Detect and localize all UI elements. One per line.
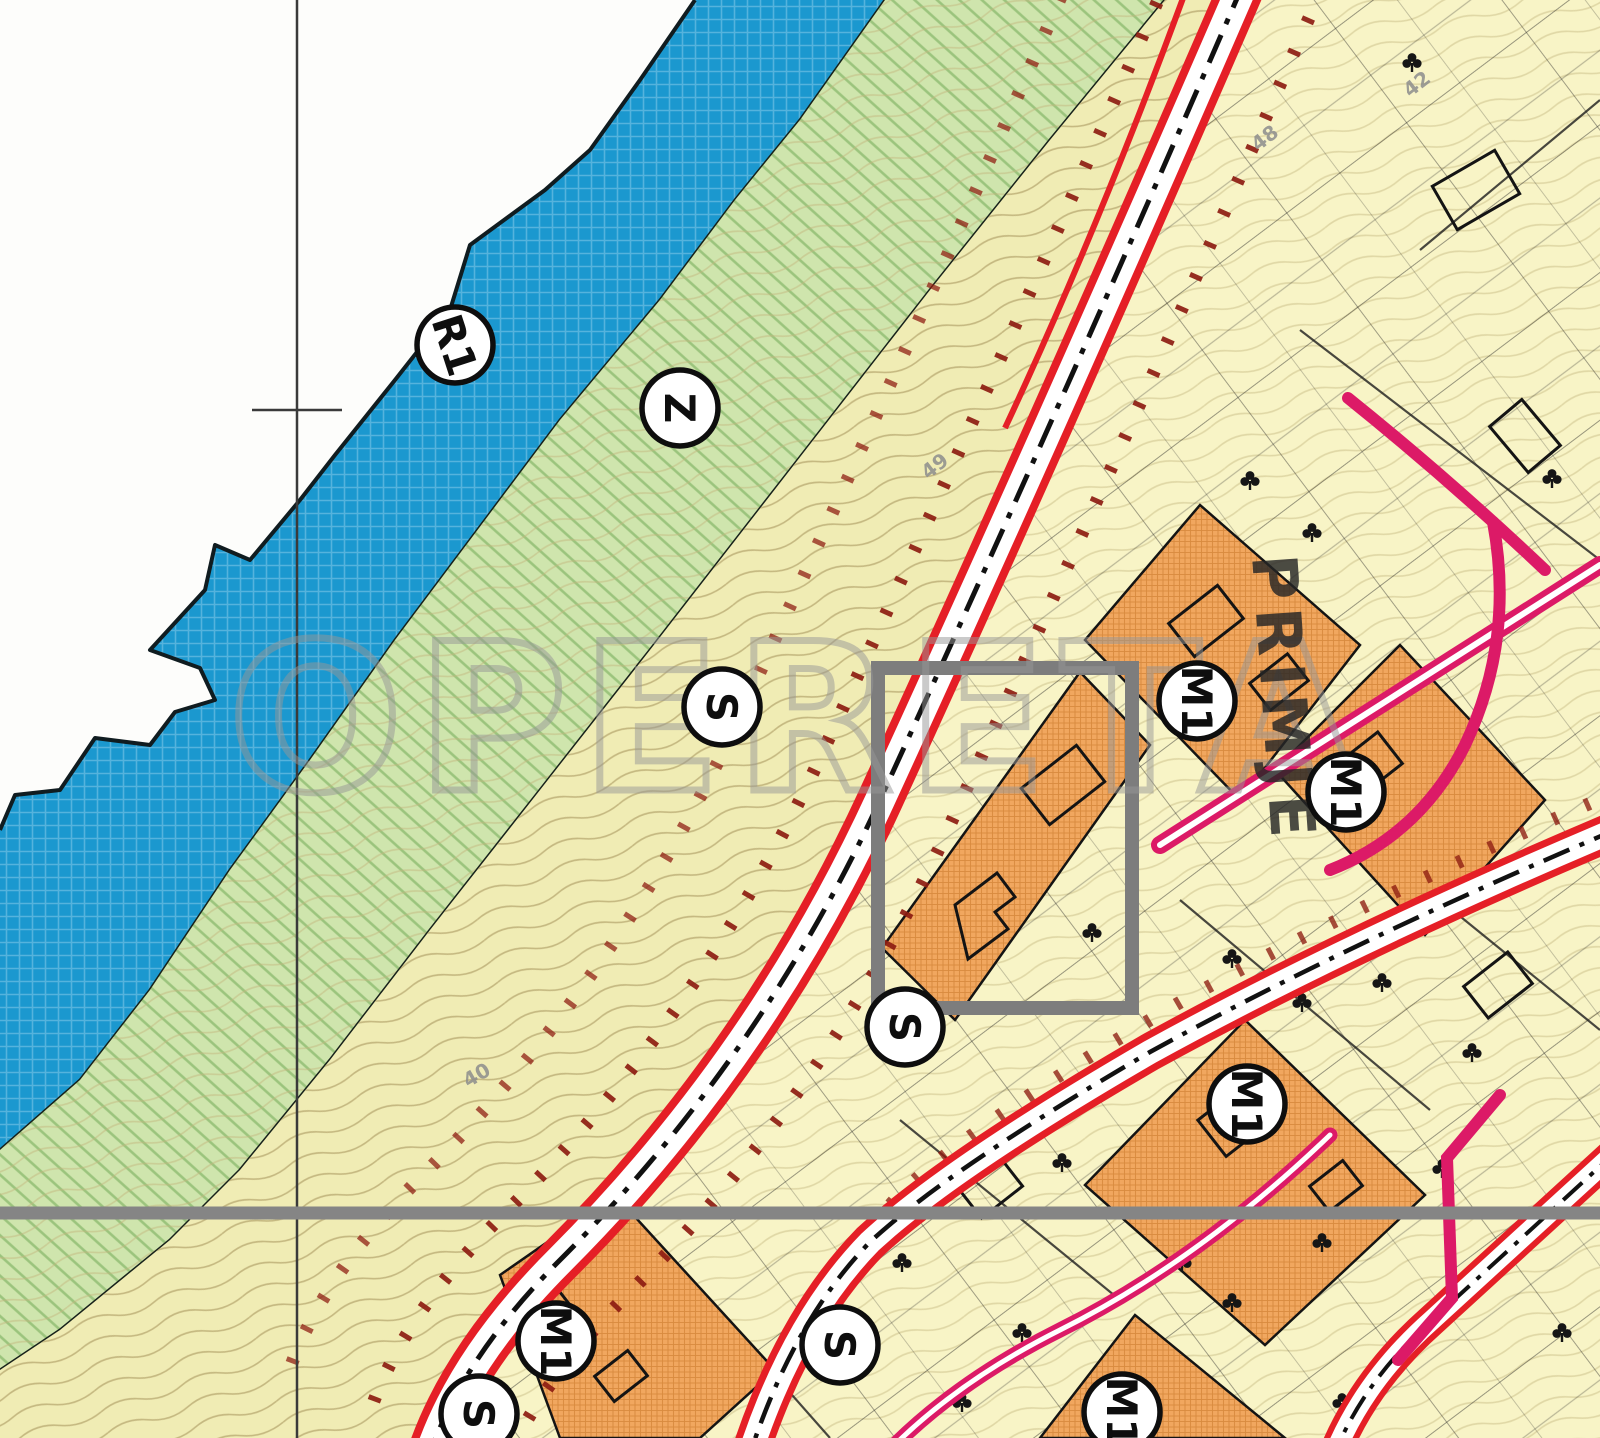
zone-badge-m1: M1: [1159, 663, 1235, 739]
zone-badge-m1: M1: [518, 1303, 594, 1379]
zone-badge-m1: M1: [1209, 1066, 1285, 1142]
zone-badge-label: S: [815, 1330, 864, 1360]
zone-badge-label: M1: [1172, 665, 1221, 736]
zone-badge-label: Z: [655, 393, 704, 423]
zone-badge-label: M1: [1321, 756, 1370, 827]
zone-badge-s: S: [802, 1307, 878, 1383]
zone-badge-z: Z: [642, 370, 718, 446]
zone-badge-m1: M1: [1308, 754, 1384, 830]
zoning-map-page: OPERETA PRIMJE 49484240 R1ZSSM1M1M1M1SSM…: [0, 0, 1600, 1438]
zone-badge-label: S: [697, 692, 746, 722]
zone-badge-s: S: [684, 669, 760, 745]
zone-badge-label: M1: [1222, 1068, 1271, 1139]
zone-badge-s: S: [441, 1376, 517, 1438]
zone-badge-label: S: [880, 1012, 929, 1042]
zone-badge-s: S: [867, 989, 943, 1065]
zone-badge-label: M1: [1097, 1376, 1146, 1438]
zone-badge-r1: R1: [417, 307, 493, 383]
zone-badge-label: M1: [531, 1305, 580, 1376]
map-canvas[interactable]: OPERETA PRIMJE 49484240 R1ZSSM1M1M1M1SSM…: [0, 0, 1600, 1438]
zone-badge-label: S: [454, 1399, 503, 1429]
zone-badge-m1: M1: [1084, 1374, 1160, 1438]
